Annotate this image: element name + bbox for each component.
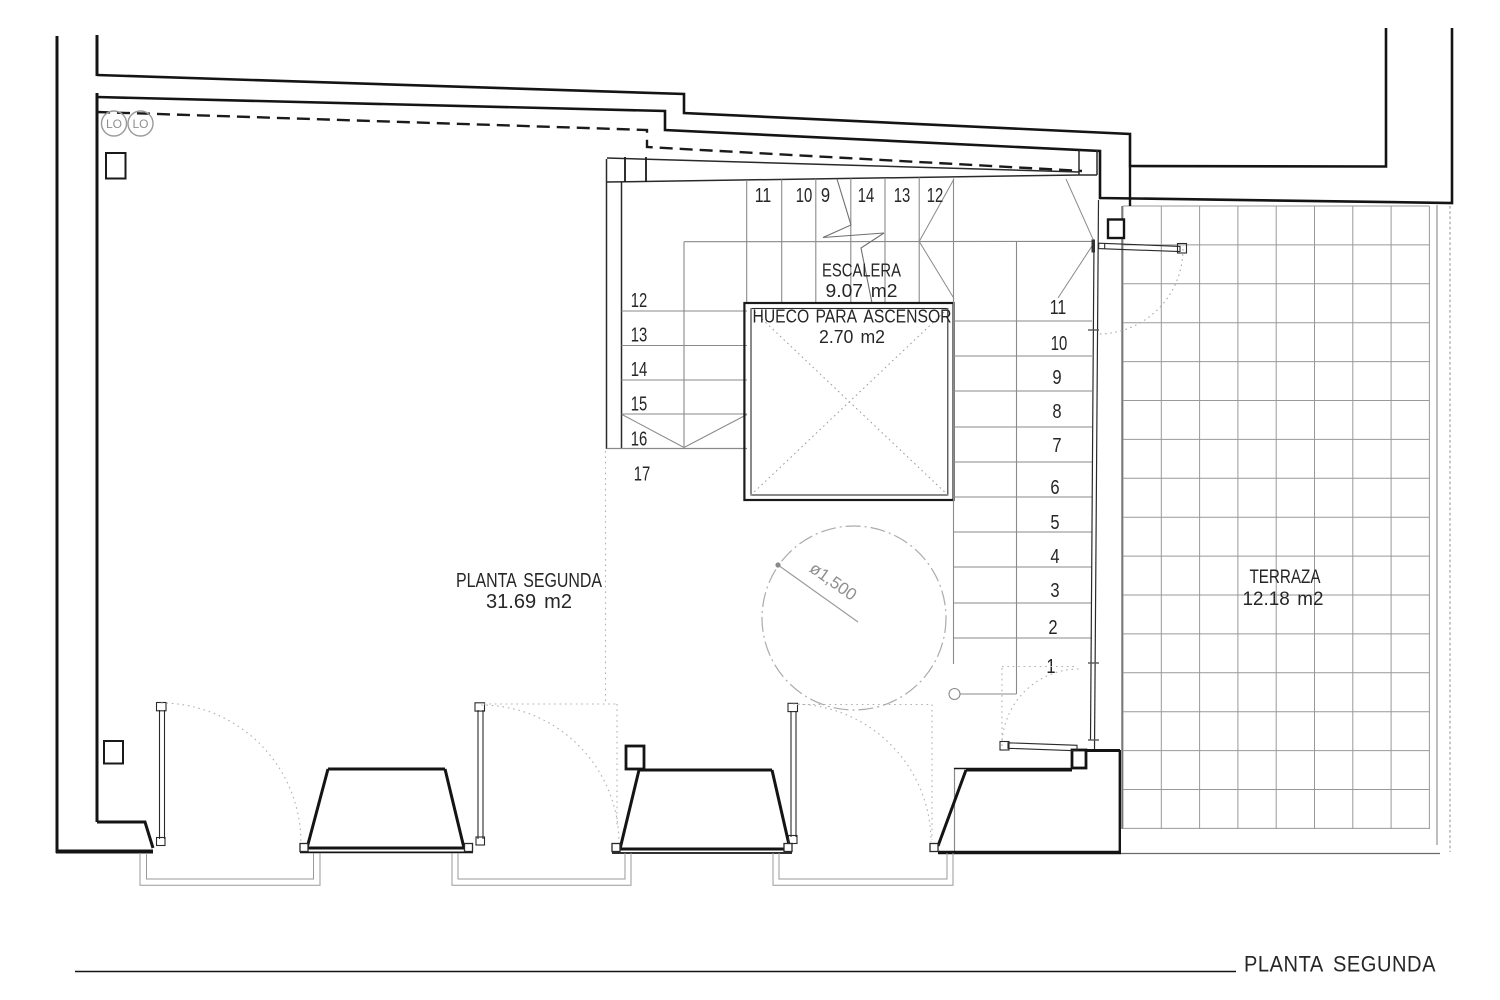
svg-text:TERRAZA: TERRAZA [1250,567,1321,588]
svg-text:12.18 m2: 12.18 m2 [1243,589,1324,610]
svg-text:PLANTA SEGUNDA: PLANTA SEGUNDA [1244,952,1436,977]
svg-text:9: 9 [1052,367,1061,389]
svg-text:2.70 m2: 2.70 m2 [819,327,885,347]
svg-text:13: 13 [894,185,911,207]
svg-text:10: 10 [1051,333,1068,355]
svg-text:5: 5 [1050,512,1059,534]
svg-text:9: 9 [821,185,830,207]
svg-text:12: 12 [927,185,944,207]
svg-text:31.69 m2: 31.69 m2 [486,591,572,613]
svg-text:12: 12 [631,290,648,312]
svg-text:14: 14 [858,185,875,207]
svg-text:LO: LO [106,117,122,131]
svg-text:PLANTA SEGUNDA: PLANTA SEGUNDA [456,570,603,592]
svg-text:14: 14 [631,359,648,381]
svg-text:4: 4 [1050,546,1059,568]
svg-text:LO: LO [132,117,148,131]
svg-text:9.07 m2: 9.07 m2 [826,281,898,301]
svg-text:10: 10 [796,185,813,207]
svg-text:11: 11 [755,185,772,207]
svg-text:6: 6 [1050,477,1059,499]
svg-text:15: 15 [631,394,648,416]
svg-text:11: 11 [1050,297,1067,319]
svg-text:2: 2 [1048,617,1057,639]
svg-text:3: 3 [1050,580,1059,602]
svg-text:16: 16 [631,429,648,451]
svg-text:13: 13 [631,325,648,347]
svg-text:HUECO PARA ASCENSOR: HUECO PARA ASCENSOR [753,307,952,327]
svg-text:ESCALERA: ESCALERA [822,261,901,281]
svg-text:8: 8 [1052,401,1061,423]
svg-text:7: 7 [1052,435,1061,457]
svg-text:17: 17 [634,464,651,486]
